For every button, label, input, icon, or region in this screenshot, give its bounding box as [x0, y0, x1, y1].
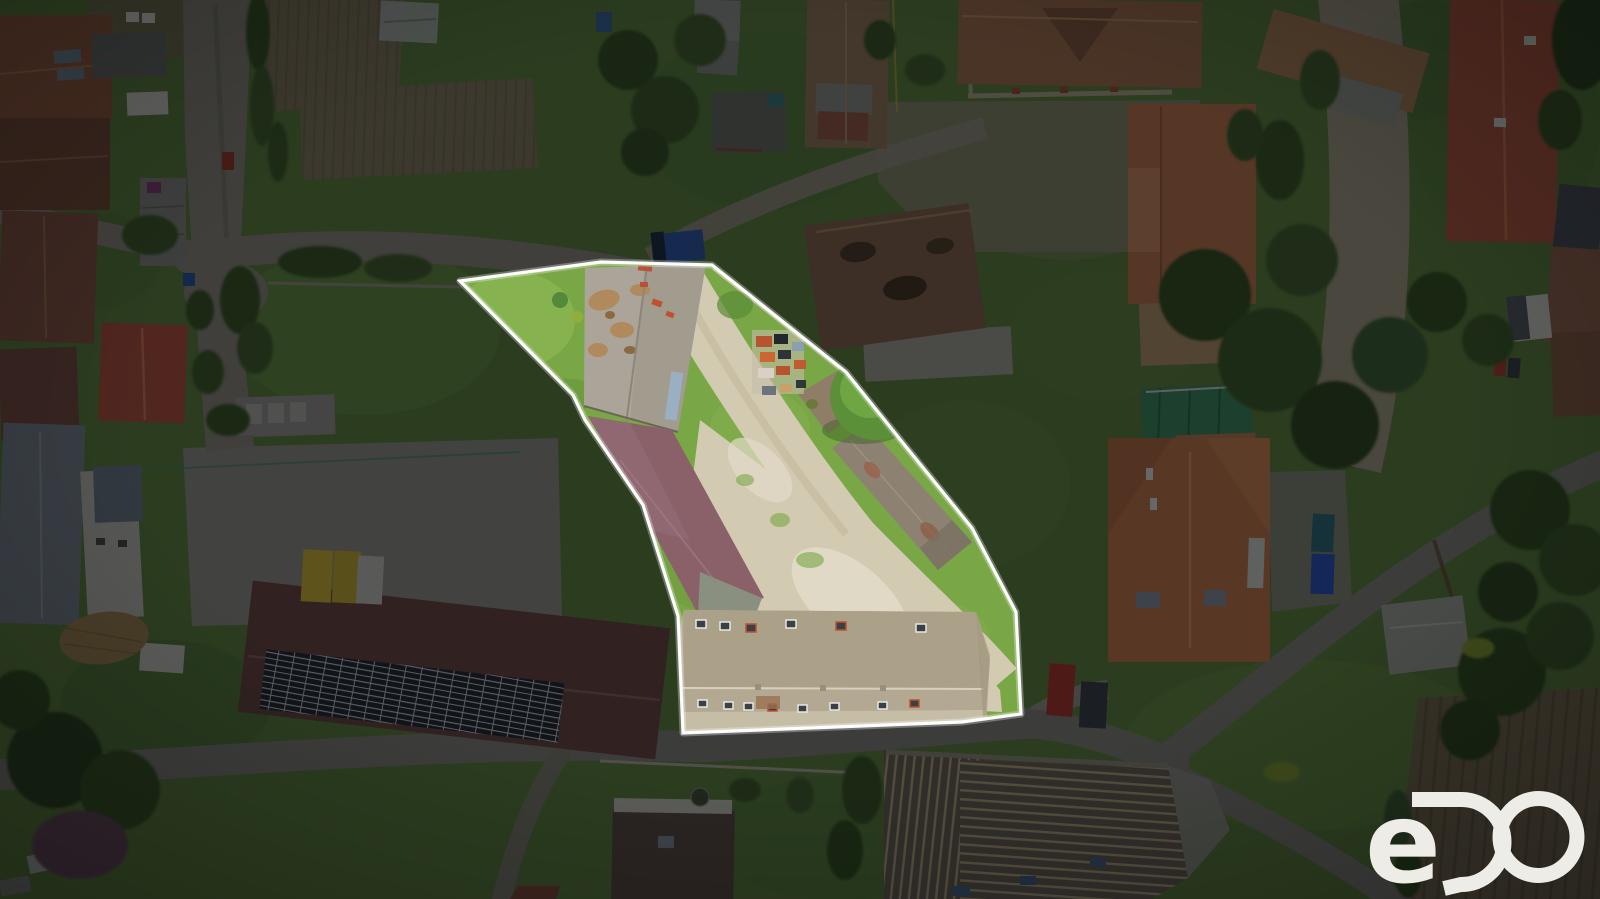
aerial-photograph: e	[0, 0, 1600, 899]
drone-photo-page: eDO e	[0, 0, 1600, 899]
dim-overlay	[0, 0, 1600, 899]
vignette	[0, 0, 1600, 899]
